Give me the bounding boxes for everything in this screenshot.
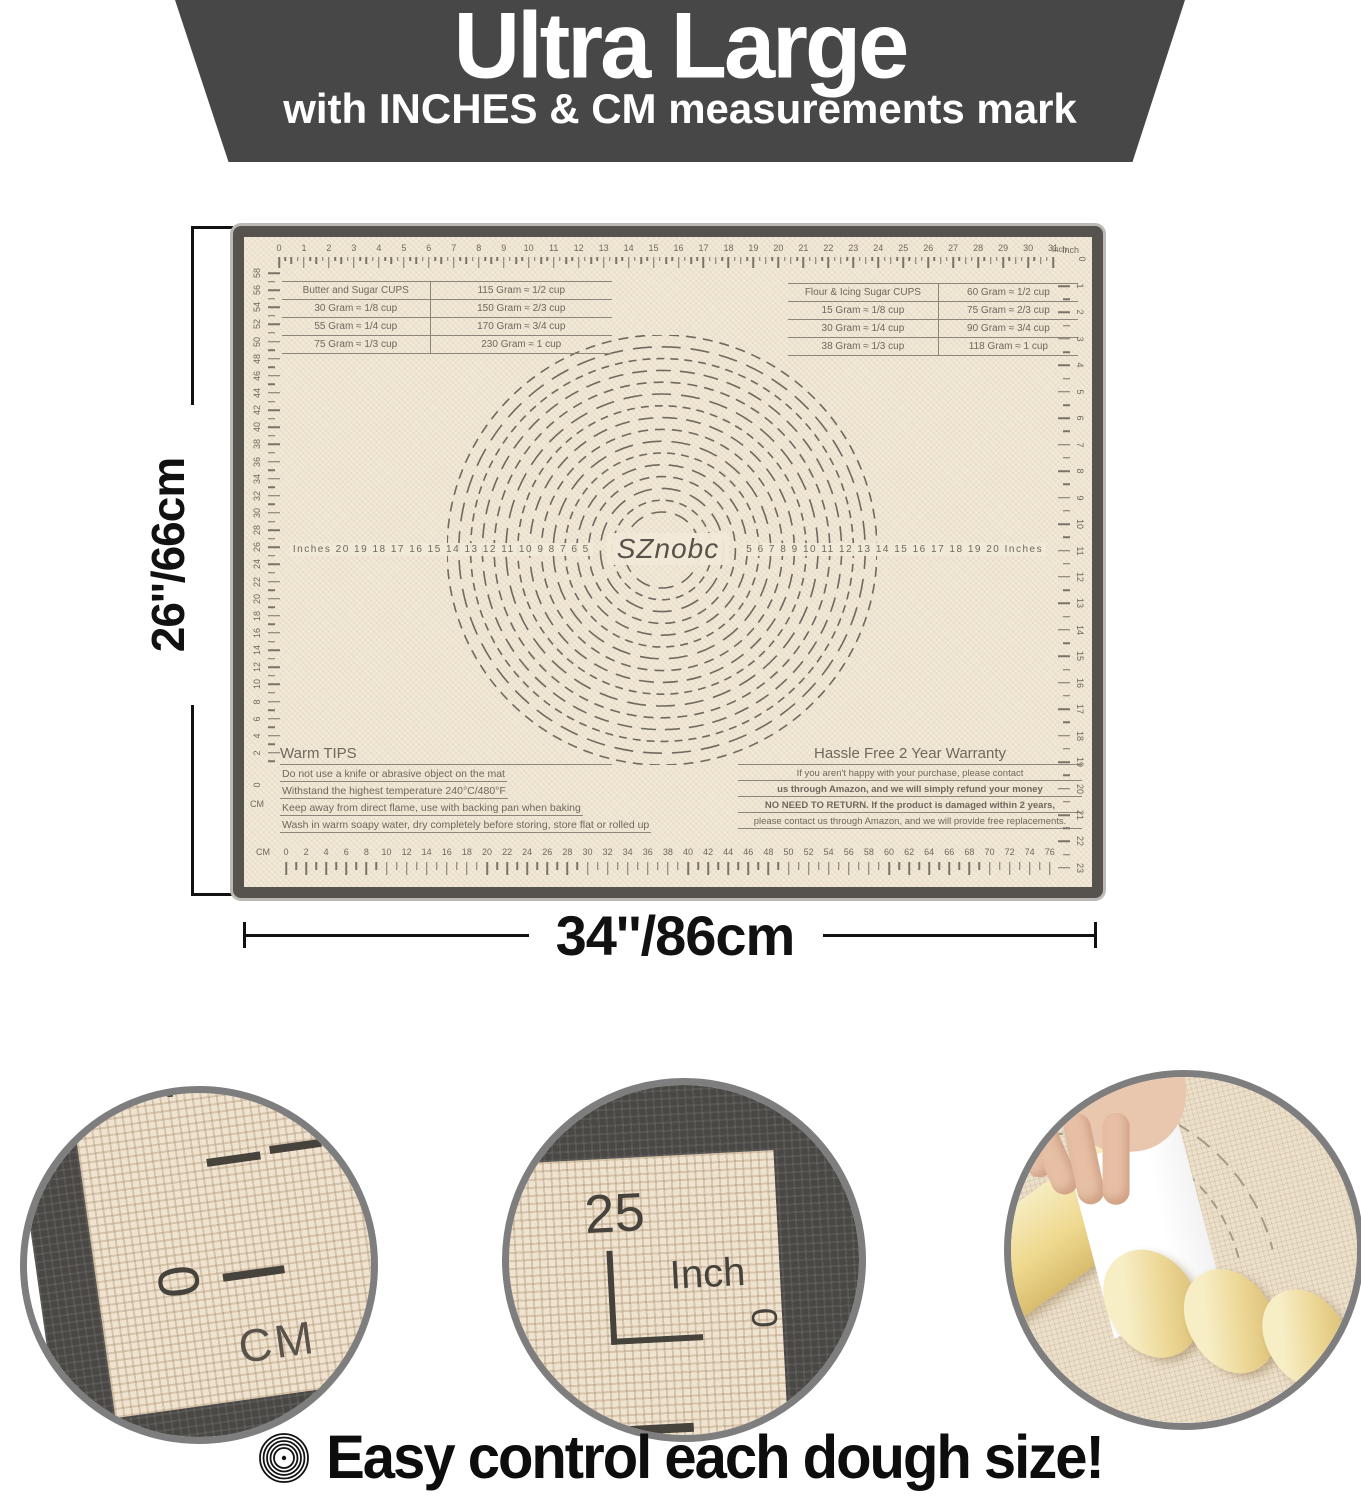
mat-marking xyxy=(268,469,275,471)
warranty-line: If you aren't happy with your purchase, … xyxy=(738,765,1082,781)
right-ruler-tick xyxy=(1058,365,1070,367)
mat-marking xyxy=(565,257,567,264)
mat-marking xyxy=(838,862,840,870)
right-ruler-number: 12 xyxy=(1075,572,1085,582)
left-ruler-number: 48 xyxy=(252,354,262,364)
caption: Easy control each dough size! xyxy=(0,1424,1361,1491)
mat-marking xyxy=(397,257,399,261)
bottom-ruler-tick xyxy=(346,862,348,875)
inch-label-25: 25 xyxy=(583,1181,646,1246)
bottom-ruler-tick xyxy=(928,862,930,875)
top-ruler-number: 8 xyxy=(476,243,481,253)
bottom-ruler-tick xyxy=(486,862,488,875)
mat-marking xyxy=(497,257,499,261)
right-ruler-number: 23 xyxy=(1075,863,1085,873)
height-dim-bottom-cap xyxy=(191,893,233,896)
mat-marking xyxy=(634,257,636,261)
bottom-ruler-tick xyxy=(1009,862,1011,875)
mat-marking xyxy=(884,257,886,261)
mat-marking xyxy=(990,257,992,264)
left-ruler-tick xyxy=(268,392,280,394)
mat-marking xyxy=(584,257,586,261)
warm-tips-lines: Do not use a knife or abrasive object on… xyxy=(280,765,651,833)
mat-marking xyxy=(347,257,349,261)
top-ruler-tick xyxy=(603,257,605,268)
top-ruler-number: 13 xyxy=(599,243,609,253)
top-ruler-tick xyxy=(653,257,655,268)
mat-marking xyxy=(798,862,800,870)
right-ruler-tick xyxy=(1058,603,1070,605)
width-dim-right-cap xyxy=(1094,922,1097,948)
bottom-ruler-number: 64 xyxy=(924,847,934,857)
top-ruler-number: 22 xyxy=(823,243,833,253)
mat-marking xyxy=(609,257,611,261)
bottom-ruler-tick xyxy=(989,862,991,875)
mat-marking xyxy=(959,862,961,870)
mat-marking xyxy=(359,257,361,261)
mat-marking xyxy=(416,862,418,870)
left-ruler-tick xyxy=(268,375,280,377)
bottom-ruler-tick xyxy=(848,862,850,875)
mat-marking xyxy=(322,257,324,261)
bottom-ruler-number: 44 xyxy=(723,847,733,857)
mat-marking xyxy=(846,257,848,261)
flour-sugar-conversion-table: Flour & Icing Sugar CUPS60 Gram ≈ 1/2 cu… xyxy=(788,283,1078,356)
bottom-ruler-tick xyxy=(587,862,589,875)
top-ruler-number: 18 xyxy=(723,243,733,253)
cm-label-0: 0 xyxy=(144,1261,215,1302)
bottom-ruler-number: 22 xyxy=(502,847,512,857)
bottom-ruler-number: 36 xyxy=(643,847,653,857)
bottom-ruler-tick xyxy=(748,862,750,875)
right-ruler-number: 14 xyxy=(1075,625,1085,635)
left-ruler-tick xyxy=(268,649,280,651)
mat-marking xyxy=(284,257,286,261)
mat-marking xyxy=(672,257,674,261)
left-ruler-number: 34 xyxy=(252,474,262,484)
left-ruler-number: 32 xyxy=(252,491,262,501)
mat-marking xyxy=(537,862,539,870)
right-ruler-tick xyxy=(1058,682,1070,684)
closeup-dough-photo: 3234363840424465432Inches xyxy=(1004,1070,1361,1430)
right-ruler-tick xyxy=(1058,338,1070,340)
butter-table-cell: 170 Gram ≈ 3/4 cup xyxy=(431,318,613,336)
right-ruler-number: 10 xyxy=(1075,519,1085,529)
bottom-ruler-number: 54 xyxy=(824,847,834,857)
mat-marking xyxy=(268,418,275,420)
bottom-ruler-number: 18 xyxy=(462,847,472,857)
mat-marking xyxy=(909,257,911,261)
mat-marking xyxy=(721,257,723,261)
bottom-ruler-number: 56 xyxy=(844,847,854,857)
mat-marking xyxy=(815,257,817,264)
mat-marking xyxy=(472,257,474,261)
mat-marking xyxy=(1009,257,1011,261)
left-ruler-number: 50 xyxy=(252,337,262,347)
left-ruler-number: 44 xyxy=(252,388,262,398)
mat-marking xyxy=(376,862,378,870)
bottom-ruler-number: 76 xyxy=(1045,847,1055,857)
left-ruler-tick xyxy=(268,427,280,429)
bottom-ruler-tick xyxy=(506,862,508,875)
bottom-ruler-number: 28 xyxy=(562,847,572,857)
caption-text: Easy control each dough size! xyxy=(326,1422,1103,1492)
top-ruler-tick xyxy=(1052,257,1054,268)
flour-table-cell: 118 Gram ≈ 1 cup xyxy=(939,338,1078,356)
top-ruler-tick xyxy=(328,257,330,268)
product-infographic: Ultra Large with INCHES & CM measurement… xyxy=(0,0,1361,1500)
dough-piece-3 xyxy=(1246,1274,1361,1403)
mat-marking xyxy=(268,641,275,643)
mat-marking xyxy=(647,257,649,261)
top-ruler-number: 0 xyxy=(276,243,281,253)
right-ruler-tick xyxy=(1058,841,1070,843)
center-diameter-scale: Inches 20 19 18 17 16 15 14 13 12 11 10 … xyxy=(244,533,1092,565)
top-ruler-tick xyxy=(1027,257,1029,268)
height-dim-top-cap xyxy=(191,226,233,229)
bottom-ruler-number: 10 xyxy=(381,847,391,857)
mat-marking xyxy=(372,257,374,261)
mat-marking xyxy=(316,257,318,264)
top-ruler-tick xyxy=(578,257,580,268)
bottom-ruler-number: 62 xyxy=(904,847,914,857)
top-ruler-tick xyxy=(678,257,680,268)
mat-marking xyxy=(268,384,275,386)
mat-marking xyxy=(268,709,275,711)
mat-marking xyxy=(268,761,275,763)
mat-marking xyxy=(738,862,740,870)
mat-marking xyxy=(268,624,275,626)
left-ruler-tick xyxy=(268,495,280,497)
mat-marking xyxy=(1063,351,1070,353)
left-ruler-tick xyxy=(268,289,280,291)
mat-marking xyxy=(690,257,692,264)
left-ruler-tick xyxy=(268,341,280,343)
mat-marking xyxy=(315,862,317,870)
flour-table-cell: 15 Gram ≈ 1/8 cup xyxy=(788,302,939,320)
right-ruler-number: 17 xyxy=(1075,704,1085,714)
top-ruler-tick xyxy=(703,257,705,268)
left-ruler-number: 52 xyxy=(252,319,262,329)
mat-marking xyxy=(336,862,338,870)
warm-tips-line: Withstand the highest temperature 240°C/… xyxy=(280,782,508,799)
mat-marking xyxy=(466,257,468,264)
right-ruler-number: 13 xyxy=(1075,598,1085,608)
mat-marking xyxy=(1063,827,1070,829)
mat-marking xyxy=(657,862,659,870)
right-ruler-tick xyxy=(1058,708,1070,710)
top-ruler-number: 3 xyxy=(351,243,356,253)
butter-table-cell: 230 Gram ≈ 1 cup xyxy=(431,336,613,354)
warranty-line: us through Amazon, and we will simply re… xyxy=(738,781,1082,797)
mat-marking xyxy=(1034,257,1036,261)
top-ruler-number: 30 xyxy=(1023,243,1033,253)
mat-marking xyxy=(577,862,579,870)
right-ruler-number: 1 xyxy=(1075,283,1085,288)
left-ruler-tick xyxy=(268,358,280,360)
bottom-ruler-number: 6 xyxy=(344,847,349,857)
mat-marking xyxy=(796,257,798,261)
mat-marking xyxy=(1063,616,1070,618)
bottom-ruler-tick xyxy=(1049,862,1051,875)
right-ruler-tick xyxy=(1058,814,1070,816)
butter-table-cell: 55 Gram ≈ 1/4 cup xyxy=(282,318,431,336)
mat-marking xyxy=(516,862,518,870)
diameter-scale-left: Inches 20 19 18 17 16 15 14 13 12 11 10 … xyxy=(290,543,593,556)
mat-marking xyxy=(878,862,880,870)
mat-marking xyxy=(447,257,449,261)
left-ruler-number: 6 xyxy=(252,716,262,721)
warranty-line: please contact us through Amazon, and we… xyxy=(738,813,1082,829)
bottom-ruler-tick xyxy=(888,862,890,875)
mat-marking xyxy=(341,257,343,264)
bottom-ruler-number: 2 xyxy=(304,847,309,857)
mat-marking xyxy=(984,257,986,261)
mat-marking xyxy=(615,257,617,264)
mat-marking xyxy=(384,257,386,261)
left-ruler-number: 46 xyxy=(252,371,262,381)
mat-marking xyxy=(436,862,438,870)
bottom-ruler-number: 50 xyxy=(783,847,793,857)
flour-table-cell: 30 Gram ≈ 1/4 cup xyxy=(788,320,939,338)
bottom-ruler-number: 58 xyxy=(864,847,874,857)
mat-marking xyxy=(597,862,599,870)
left-ruler-tick xyxy=(268,461,280,463)
mat-marking xyxy=(1040,257,1042,264)
mat-marking xyxy=(1021,257,1023,261)
left-ruler-tick xyxy=(268,666,280,668)
mat-marking xyxy=(1019,862,1021,870)
mat-marking xyxy=(918,862,920,870)
cm-unit-label: CM xyxy=(235,1310,319,1374)
left-ruler-number: 38 xyxy=(252,439,262,449)
concentric-circles-icon xyxy=(258,1432,310,1484)
mat-marking xyxy=(1063,431,1070,433)
inch-corner-rotated: 25 Inch 0 xyxy=(502,1078,866,1442)
cm-corner-rotated: 2 0 CM 0 xyxy=(20,1086,378,1444)
mat-marking xyxy=(1063,404,1070,406)
top-ruler-tick xyxy=(628,257,630,268)
bottom-ruler-number: 46 xyxy=(743,847,753,857)
butter-table-cell: 150 Gram ≈ 2/3 cup xyxy=(431,300,613,318)
mat-marking xyxy=(476,862,478,870)
bottom-ruler-tick xyxy=(687,862,689,875)
bottom-ruler-tick xyxy=(868,862,870,875)
left-ruler-tick xyxy=(268,444,280,446)
top-ruler-tick xyxy=(878,257,880,268)
mat-marking xyxy=(740,257,742,264)
cm-tick-minor-2 xyxy=(269,1139,322,1154)
mat-marking xyxy=(295,862,297,870)
right-ruler-tick xyxy=(1058,497,1070,499)
mat-marking xyxy=(441,257,443,264)
mat-surface: Inches 20 19 18 17 16 15 14 13 12 11 10 … xyxy=(244,237,1092,887)
bottom-ruler-number: 20 xyxy=(482,847,492,857)
mat-marking xyxy=(1063,325,1070,327)
mat-marking xyxy=(818,862,820,870)
mat-marking xyxy=(734,257,736,261)
mat-marking xyxy=(268,401,275,403)
bottom-ruler-tick xyxy=(808,862,810,875)
top-ruler-tick xyxy=(303,257,305,268)
left-ruler-number: 42 xyxy=(252,405,262,415)
right-ruler-tick xyxy=(1058,576,1070,578)
mat-marking xyxy=(268,521,275,523)
bottom-ruler-number: 4 xyxy=(324,847,329,857)
mat-marking xyxy=(697,862,699,870)
left-ruler-number: 58 xyxy=(252,268,262,278)
bottom-ruler-tick xyxy=(627,862,629,875)
top-ruler-number: 21 xyxy=(798,243,808,253)
left-ruler-number: 16 xyxy=(252,628,262,638)
bottom-ruler-number: 30 xyxy=(582,847,592,857)
mat-marking xyxy=(1063,669,1070,671)
warranty-line: NO NEED TO RETURN. If the product is dam… xyxy=(738,797,1082,813)
mat-marking xyxy=(934,257,936,261)
banner-title: Ultra Large xyxy=(175,0,1185,100)
mat-marking xyxy=(898,862,900,870)
flour-table-cell: Flour & Icing Sugar CUPS xyxy=(788,284,939,302)
top-ruler-tick xyxy=(828,257,830,268)
top-ruler-tick xyxy=(403,257,405,268)
bottom-ruler-number: 16 xyxy=(442,847,452,857)
mat-marking xyxy=(297,257,299,261)
mat-marking xyxy=(1046,257,1048,261)
top-ruler-tick xyxy=(927,257,929,268)
left-ruler-tick xyxy=(268,615,280,617)
right-ruler-number: 2 xyxy=(1075,310,1085,315)
right-ruler-tick xyxy=(1058,444,1070,446)
bottom-ruler-number: 34 xyxy=(623,847,633,857)
mat-marking xyxy=(858,862,860,870)
right-ruler-tick xyxy=(1058,656,1070,658)
mat-marking xyxy=(268,349,275,351)
mat-marking xyxy=(268,315,275,317)
mat-marking xyxy=(268,281,275,283)
mat-marking xyxy=(665,257,667,264)
mat-marking xyxy=(334,257,336,261)
butter-table-cell: 115 Gram ≈ 1/2 cup xyxy=(431,282,613,300)
hand-finger-4 xyxy=(1103,1113,1130,1205)
mat-marking xyxy=(356,862,358,870)
right-ruler-number: 19 xyxy=(1075,757,1085,767)
warm-tips-title: Warm TIPS xyxy=(280,745,612,765)
top-ruler-number: 19 xyxy=(748,243,758,253)
left-ruler-number: 18 xyxy=(252,611,262,621)
left-ruler-number: 54 xyxy=(252,302,262,312)
mat-marking xyxy=(1063,695,1070,697)
top-ruler-tick xyxy=(728,257,730,268)
right-ruler-tick xyxy=(1058,285,1070,287)
top-ruler-number: 6 xyxy=(426,243,431,253)
mat-marking xyxy=(309,257,311,261)
bottom-ruler-number: 12 xyxy=(402,847,412,857)
mat-marking xyxy=(559,257,561,261)
mat-marking xyxy=(865,257,867,264)
mat-marking xyxy=(915,257,917,264)
bottom-ruler-tick xyxy=(526,862,528,875)
pastry-mat: Inches 20 19 18 17 16 15 14 13 12 11 10 … xyxy=(233,226,1103,898)
mat-marking xyxy=(921,257,923,261)
left-ruler-number: 4 xyxy=(252,733,262,738)
top-ruler-number: 28 xyxy=(973,243,983,253)
mat-marking xyxy=(509,257,511,261)
bottom-ruler-unit: CM xyxy=(256,847,270,857)
bottom-ruler-tick xyxy=(305,862,307,875)
mat-marking xyxy=(821,257,823,261)
mat-marking xyxy=(515,257,517,264)
mat-marking xyxy=(268,726,275,728)
top-ruler-tick xyxy=(528,257,530,268)
bottom-ruler-number: 32 xyxy=(603,847,613,857)
mat-marking xyxy=(522,257,524,261)
mat-marking xyxy=(1063,775,1070,777)
mat-marking xyxy=(940,257,942,264)
mat-marking xyxy=(590,257,592,264)
mat-marking xyxy=(268,675,275,677)
mat-marking xyxy=(790,257,792,264)
bottom-ruler-tick xyxy=(828,862,830,875)
bottom-ruler-number: 74 xyxy=(1025,847,1035,857)
top-ruler-tick xyxy=(428,257,430,268)
right-ruler-tick xyxy=(1058,470,1070,472)
flour-table-cell: 90 Gram ≈ 3/4 cup xyxy=(939,320,1078,338)
top-ruler-number: 20 xyxy=(773,243,783,253)
top-ruler-number: 26 xyxy=(923,243,933,253)
top-ruler-number: 23 xyxy=(848,243,858,253)
mat-marking xyxy=(1063,801,1070,803)
bottom-ruler-number: 38 xyxy=(663,847,673,857)
top-ruler-number: 9 xyxy=(501,243,506,253)
bottom-ruler-number: 72 xyxy=(1005,847,1015,857)
left-ruler-tick xyxy=(268,718,280,720)
mat-marking xyxy=(1063,854,1070,856)
top-ruler-tick xyxy=(1002,257,1004,268)
mat-marking xyxy=(484,257,486,261)
mat-marking xyxy=(534,257,536,261)
right-ruler-tick xyxy=(1058,523,1070,525)
bottom-ruler-tick xyxy=(285,862,287,875)
top-ruler-tick xyxy=(278,257,280,268)
mat-marking xyxy=(268,504,275,506)
mat-marking xyxy=(268,487,275,489)
bottom-ruler-tick xyxy=(949,862,951,875)
top-ruler-number: 1 xyxy=(301,243,306,253)
top-ruler-tick xyxy=(778,257,780,268)
bottom-ruler-number: 48 xyxy=(763,847,773,857)
mat-marking xyxy=(640,257,642,264)
bottom-ruler-tick xyxy=(366,862,368,875)
banner: Ultra Large with INCHES & CM measurement… xyxy=(175,0,1185,162)
bottom-ruler-tick xyxy=(567,862,569,875)
right-ruler-tick xyxy=(1058,391,1070,393)
mat-marking xyxy=(1063,589,1070,591)
mat-marking xyxy=(597,257,599,261)
right-ruler-unit: Inch xyxy=(1052,245,1067,254)
left-ruler-number: 2 xyxy=(252,750,262,755)
butter-table-cell: 75 Gram ≈ 1/3 cup xyxy=(282,336,431,354)
mat-marking xyxy=(434,257,436,261)
right-ruler-number: 6 xyxy=(1075,416,1085,421)
butter-sugar-conversion-table: Butter and Sugar CUPS115 Gram ≈ 1/2 cup3… xyxy=(282,281,612,354)
warm-tips-line: Keep away from direct flame, use with ba… xyxy=(280,799,583,816)
cm-tick-minor-1 xyxy=(206,1151,261,1166)
mat-marking xyxy=(617,862,619,870)
left-ruler-tick xyxy=(268,272,280,274)
mat-marking xyxy=(409,257,411,261)
mat-marking xyxy=(1015,257,1017,264)
brand-logo: SZnobc xyxy=(607,533,730,565)
